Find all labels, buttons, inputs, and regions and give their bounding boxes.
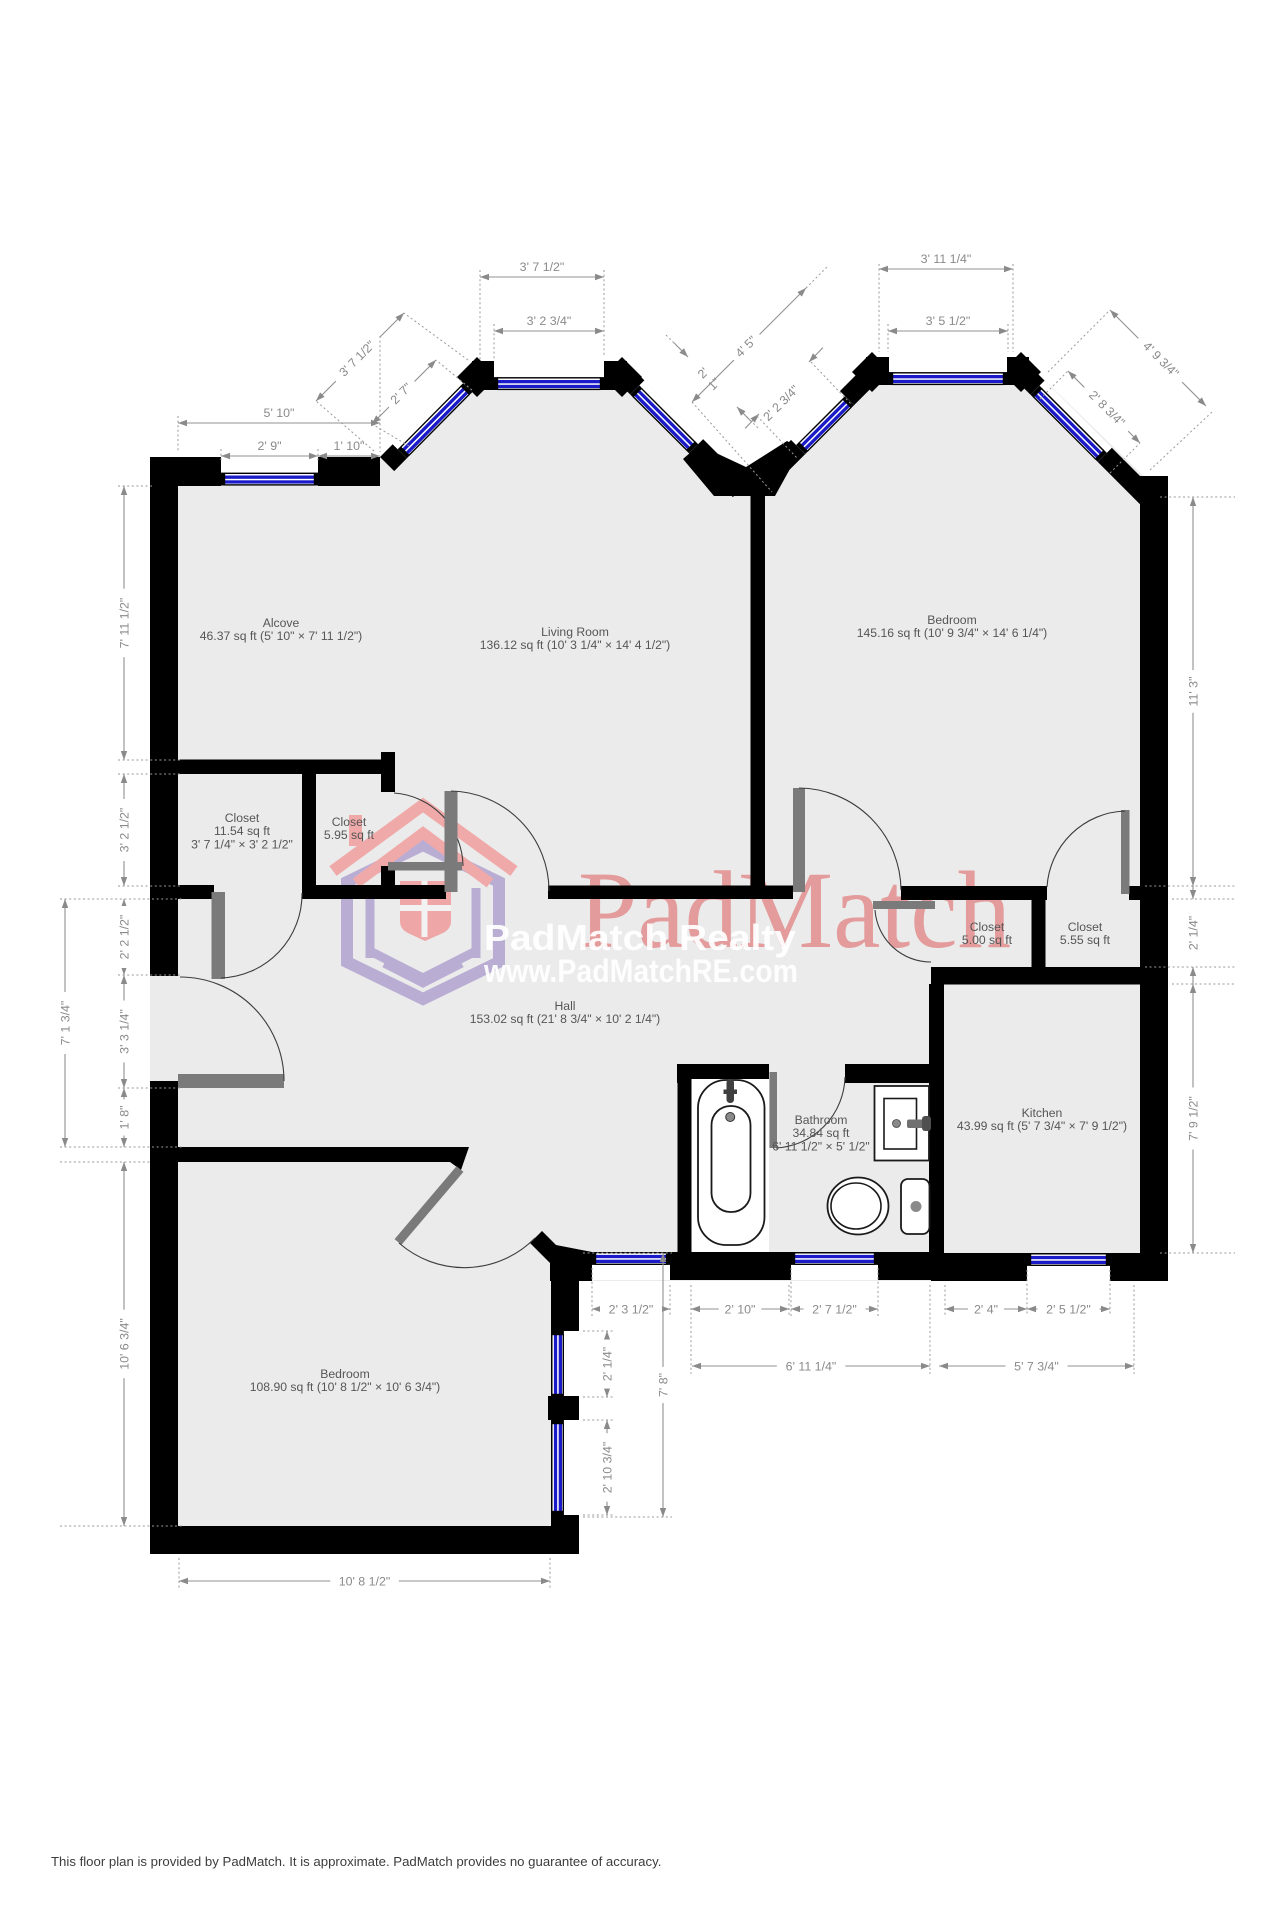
svg-text:6' 11 1/2" × 5' 1/2": 6' 11 1/2" × 5' 1/2" <box>772 1139 869 1153</box>
svg-text:11.54 sq ft: 11.54 sq ft <box>214 824 271 838</box>
svg-text:11' 3": 11' 3" <box>1187 677 1201 707</box>
svg-text:7' 8": 7' 8" <box>657 1373 671 1397</box>
svg-text:2' 7 1/2": 2' 7 1/2" <box>812 1303 857 1317</box>
svg-text:2' 3 1/2": 2' 3 1/2" <box>609 1303 654 1317</box>
svg-text:Alcove: Alcove <box>263 616 300 630</box>
svg-text:3' 11 1/4": 3' 11 1/4" <box>921 252 972 266</box>
svg-text:2' 4": 2' 4" <box>974 1303 998 1317</box>
svg-text:Closet: Closet <box>225 811 260 825</box>
svg-text:4' 9 3/4": 4' 9 3/4" <box>1140 339 1181 380</box>
svg-text:Bathroom: Bathroom <box>795 1113 848 1127</box>
svg-text:Bedroom: Bedroom <box>927 613 976 627</box>
svg-text:2' 9": 2' 9" <box>258 439 282 453</box>
svg-text:46.37 sq ft (5' 10" × 7' 11 1/: 46.37 sq ft (5' 10" × 7' 11 1/2") <box>200 629 362 643</box>
svg-text:2' 8 3/4": 2' 8 3/4" <box>1086 388 1127 429</box>
svg-text:Living Room: Living Room <box>541 625 609 639</box>
svg-text:1' 10": 1' 10" <box>334 439 365 453</box>
svg-text:5.95 sq ft: 5.95 sq ft <box>324 828 375 842</box>
svg-text:108.90 sq ft (10' 8 1/2" × 10': 108.90 sq ft (10' 8 1/2" × 10' 6 3/4") <box>250 1380 441 1394</box>
svg-text:Hall: Hall <box>555 999 576 1013</box>
svg-text:PadMatch Realty: PadMatch Realty <box>484 917 796 958</box>
svg-text:3' 7 1/2": 3' 7 1/2" <box>336 338 377 379</box>
svg-text:43.99 sq ft (5' 7 3/4" × 7' 9: 43.99 sq ft (5' 7 3/4" × 7' 9 1/2") <box>957 1119 1127 1133</box>
svg-text:5.00 sq ft: 5.00 sq ft <box>962 933 1013 947</box>
svg-text:2' 2 3/4": 2' 2 3/4" <box>760 382 801 423</box>
svg-text:1' 8": 1' 8" <box>118 1106 132 1130</box>
svg-text:Bedroom: Bedroom <box>320 1367 369 1381</box>
svg-text:10' 6 3/4": 10' 6 3/4" <box>118 1318 132 1370</box>
svg-text:7' 1 3/4": 7' 1 3/4" <box>59 1001 73 1046</box>
svg-text:5' 10": 5' 10" <box>264 406 295 420</box>
svg-text:3' 3 1/4": 3' 3 1/4" <box>118 1009 132 1054</box>
svg-text:3' 7 1/2": 3' 7 1/2" <box>520 260 565 274</box>
svg-text:153.02 sq ft (21' 8 3/4" × 10': 153.02 sq ft (21' 8 3/4" × 10' 2 1/4") <box>470 1012 661 1026</box>
svg-text:Closet: Closet <box>1068 920 1103 934</box>
svg-text:7' 11 1/2": 7' 11 1/2" <box>118 598 132 649</box>
svg-text:6' 11 1/4": 6' 11 1/4" <box>786 1360 837 1374</box>
svg-text:3' 2 3/4": 3' 2 3/4" <box>527 314 572 328</box>
svg-text:2' 10 3/4": 2' 10 3/4" <box>601 1442 615 1494</box>
svg-text:Closet: Closet <box>332 815 367 829</box>
svg-text:136.12 sq ft (10' 3 1/4" × 14': 136.12 sq ft (10' 3 1/4" × 14' 4 1/2") <box>480 638 671 652</box>
svg-text:145.16 sq ft (10' 9 3/4" × 14': 145.16 sq ft (10' 9 3/4" × 14' 6 1/4") <box>857 626 1048 640</box>
svg-text:10' 8 1/2": 10' 8 1/2" <box>339 1575 391 1589</box>
svg-text:34.84 sq ft: 34.84 sq ft <box>793 1126 851 1140</box>
svg-text:2' 2 1/2": 2' 2 1/2" <box>118 915 132 960</box>
svg-text:2' 5 1/2": 2' 5 1/2" <box>1046 1303 1091 1317</box>
svg-text:www.PadMatchRE.com: www.PadMatchRE.com <box>483 953 798 989</box>
svg-text:5' 7 3/4": 5' 7 3/4" <box>1014 1360 1059 1374</box>
svg-text:3' 7 1/4" × 3' 2 1/2": 3' 7 1/4" × 3' 2 1/2" <box>191 837 293 851</box>
svg-text:5.55 sq ft: 5.55 sq ft <box>1060 933 1111 947</box>
svg-text:Closet: Closet <box>970 920 1005 934</box>
svg-text:3' 2 1/2": 3' 2 1/2" <box>118 808 132 853</box>
svg-text:Kitchen: Kitchen <box>1022 1106 1063 1120</box>
svg-text:2' 1/4": 2' 1/4" <box>601 1347 615 1381</box>
svg-text:2' 1/4": 2' 1/4" <box>1187 916 1201 950</box>
svg-text:7' 9 1/2": 7' 9 1/2" <box>1187 1096 1201 1141</box>
svg-text:This floor plan is provided by: This floor plan is provided by PadMatch.… <box>51 1854 661 1869</box>
svg-text:2' 10": 2' 10" <box>725 1303 756 1317</box>
svg-text:3' 5 1/2": 3' 5 1/2" <box>926 314 971 328</box>
